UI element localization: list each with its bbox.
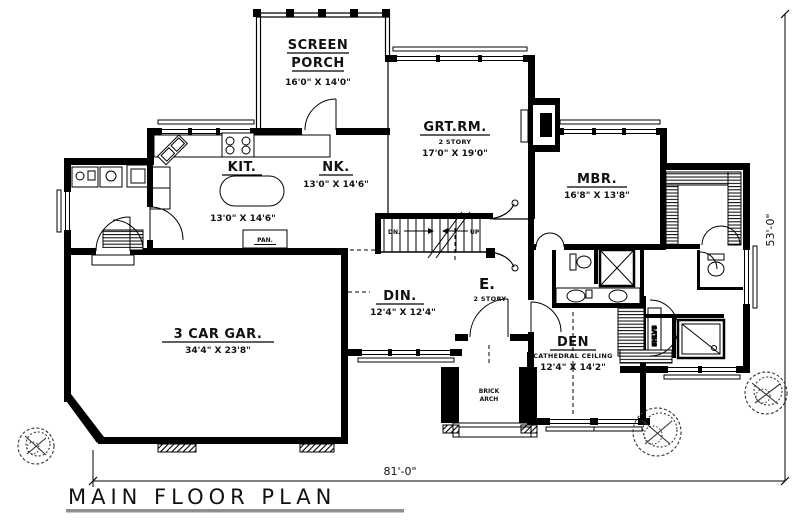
room-master-bedroom: MBR. 16'8" X 13'8"	[564, 172, 630, 201]
svg-text:12'4" X 14'2": 12'4" X 14'2"	[540, 363, 606, 373]
dashed-lines	[348, 228, 573, 416]
brick-arch-label-2: ARCH	[480, 396, 499, 403]
room-dining: DIN. 12'4" X 12'4"	[370, 289, 436, 318]
floor-plan-page: DN. UP	[0, 0, 800, 520]
svg-text:16'8" X 13'8": 16'8" X 13'8"	[564, 191, 630, 201]
pantry-label: PAN.	[254, 237, 276, 245]
shelves-label: SHLVS	[652, 325, 659, 346]
room-den: DEN CATHEDRAL CEILING 12'4" X 14'2"	[533, 335, 613, 373]
svg-text:NK.: NK.	[322, 160, 349, 175]
windows	[57, 47, 757, 431]
entry-porch: BRICK ARCH	[441, 367, 537, 437]
svg-text:34'4" X 23'8": 34'4" X 23'8"	[185, 346, 251, 356]
stairs-down-label: DN.	[388, 229, 400, 236]
svg-text:12'4" X 12'4": 12'4" X 12'4"	[370, 308, 436, 318]
depth-dimension: 53'-0"	[764, 213, 777, 246]
svg-text:13'0" X 14'6": 13'0" X 14'6"	[303, 180, 369, 190]
svg-text:MBR.: MBR.	[577, 172, 617, 187]
landscape-trees	[18, 372, 787, 464]
svg-text:2 STORY: 2 STORY	[439, 138, 472, 146]
corner-shower	[678, 320, 724, 358]
page-title: MAIN FLOOR PLAN	[68, 485, 336, 509]
svg-text:16'0" X 14'0": 16'0" X 14'0"	[285, 78, 351, 88]
wc-toilet	[708, 254, 724, 276]
kitchen-island	[220, 176, 284, 206]
svg-text:DIN.: DIN.	[383, 289, 416, 304]
svg-text:3 CAR GAR.: 3 CAR GAR.	[174, 327, 263, 342]
double-vanity	[556, 288, 640, 304]
brick-arch-label-1: BRICK	[479, 388, 500, 395]
room-entry: E. 2 STORY	[474, 275, 507, 303]
room-screen-porch: SCREEN PORCH 16'0" X 14'0"	[285, 38, 351, 88]
room-garage: 3 CAR GAR. 34'4" X 23'8"	[162, 327, 274, 356]
width-dimension: 81'-0"	[383, 465, 416, 478]
room-nook: NK. 13'0" X 14'6"	[303, 160, 369, 190]
linen-closet	[618, 308, 644, 356]
range	[222, 133, 254, 157]
plan-title: MAIN FLOOR PLAN	[66, 485, 404, 513]
master-closet	[666, 172, 741, 245]
svg-text:DEN: DEN	[557, 335, 589, 350]
shower	[600, 250, 634, 286]
tree-right	[745, 372, 787, 414]
stairs: DN. UP	[375, 200, 518, 271]
svg-text:E.: E.	[479, 275, 495, 293]
svg-text:GRT.RM.: GRT.RM.	[423, 120, 486, 135]
svg-text:PORCH: PORCH	[291, 56, 345, 71]
svg-text:2 STORY: 2 STORY	[474, 295, 507, 303]
svg-text:17'0" X 19'0": 17'0" X 19'0"	[422, 149, 488, 159]
garage-details	[158, 444, 334, 452]
svg-text:KIT.: KIT.	[228, 160, 257, 175]
room-great-room: GRT.RM. 2 STORY 17'0" X 19'0"	[420, 120, 490, 159]
screen-porch-structure	[253, 9, 390, 135]
fireplace	[521, 98, 560, 152]
toilet	[570, 254, 591, 270]
svg-text:CATHEDRAL CEILING: CATHEDRAL CEILING	[533, 352, 613, 360]
stairs-up-label: UP	[470, 229, 480, 236]
corner-sink	[158, 135, 188, 165]
kitchen-fixtures	[150, 133, 330, 248]
svg-text:13'0" X 14'6": 13'0" X 14'6"	[210, 214, 276, 224]
svg-text:SCREEN: SCREEN	[288, 38, 349, 53]
tree-left	[18, 428, 54, 464]
svg-text:PAN.: PAN.	[257, 237, 273, 244]
floor-plan-drawing: DN. UP	[0, 0, 800, 520]
